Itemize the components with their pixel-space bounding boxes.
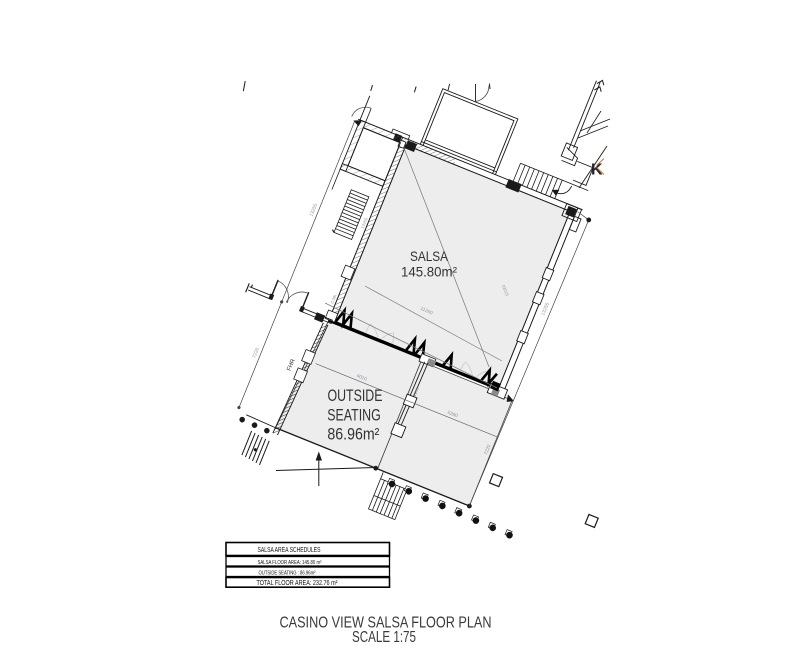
svg-text:SALSA: SALSA xyxy=(410,249,448,264)
svg-text:SALSA AREA SCHEDULES: SALSA AREA SCHEDULES xyxy=(258,547,321,554)
svg-text:145.80m²: 145.80m² xyxy=(401,265,457,280)
svg-text:OUTSIDE SEATING : 86.96m²: OUTSIDE SEATING : 86.96m² xyxy=(259,571,316,577)
svg-text:13255: 13255 xyxy=(309,203,320,218)
svg-text:86.96m²: 86.96m² xyxy=(327,426,379,444)
svg-text:FHR: FHR xyxy=(287,358,297,372)
svg-text:OUTSIDE: OUTSIDE xyxy=(328,387,383,405)
svg-text:SCALE 1:75: SCALE 1:75 xyxy=(352,629,416,646)
svg-text:TOTAL FLOOR AREA: 232.76 m²: TOTAL FLOOR AREA: 232.76 m² xyxy=(257,580,339,587)
svg-text:SALSA FLOOR AREA: 145.80 m²: SALSA FLOOR AREA: 145.80 m² xyxy=(258,560,322,566)
svg-text:SEATING: SEATING xyxy=(327,407,381,425)
svg-text:K: K xyxy=(591,162,603,179)
